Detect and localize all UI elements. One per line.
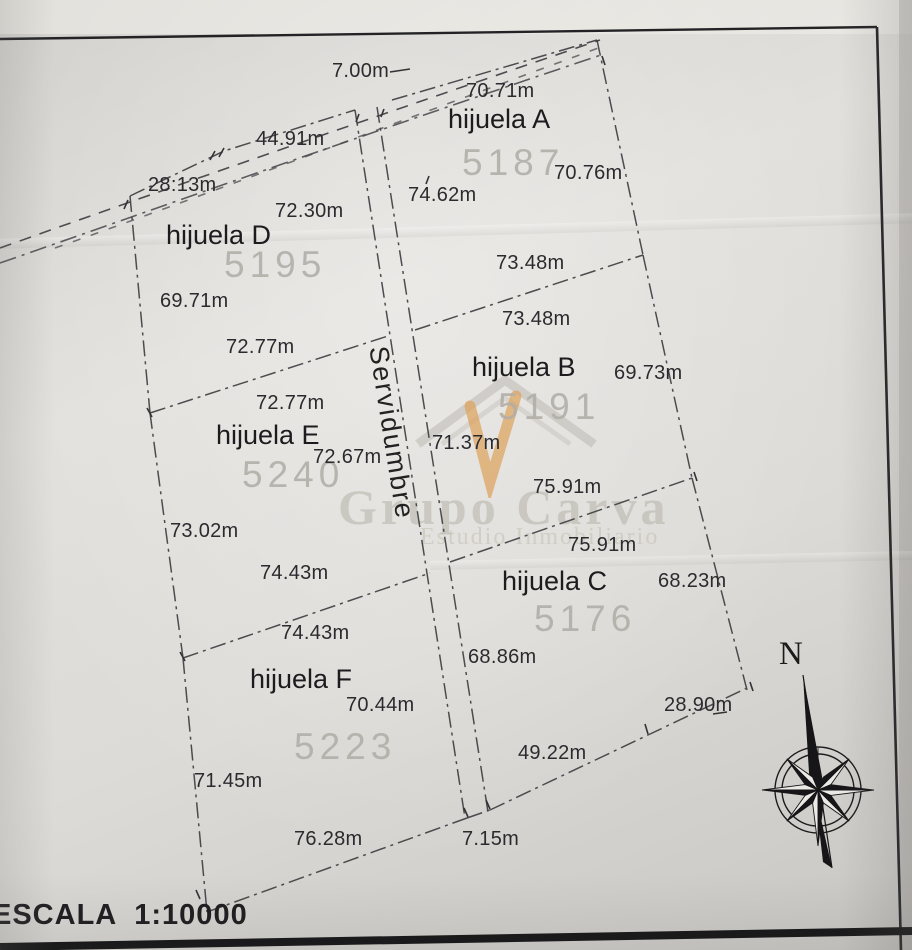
parcel-e-measurement: 73.02m [170, 520, 239, 543]
parcel-a-measurement: 73.48m [496, 252, 565, 275]
parcel-d-measurement: 72.30m [275, 200, 344, 223]
parcel-c-measurement: 68.23m [658, 570, 727, 593]
parcel-b-number: 5191 [498, 386, 600, 428]
scale-label: ESCALA 1:10000 [0, 899, 248, 932]
parcel-f-measurement: 74.43m [281, 622, 350, 645]
parcel-f-measurement: 76.28m [294, 828, 363, 851]
easement-top-width: 7.00m [332, 60, 389, 83]
parcel-b-measurement: 69.73m [614, 362, 683, 385]
parcel-c-measurement: 28.90m [664, 694, 733, 717]
parcel-c-measurement: 75.91m [568, 534, 637, 557]
parcel-e-measurement: 72.67m [313, 446, 382, 469]
parcel-c-number: 5176 [534, 598, 636, 640]
parcel-d-measurement: 28:13m [148, 174, 217, 197]
compass-north-label: N [779, 636, 803, 673]
parcel-f-measurement: 71.45m [194, 770, 263, 793]
parcel-b-measurement: 71.37m [432, 432, 501, 455]
parcel-c-measurement: 68.86m [468, 646, 537, 669]
parcel-b-name: hijuela B [472, 352, 576, 383]
parcel-a-measurement: 70.76m [554, 162, 623, 185]
parcel-f-measurement: 70.44m [346, 694, 415, 717]
parcel-f-number: 5223 [294, 726, 396, 768]
parcel-e-measurement: 72.77m [256, 392, 325, 415]
parcel-a-measurement: 70.71m [466, 80, 535, 103]
parcel-a-measurement: 74.62m [408, 184, 477, 207]
parcel-a-number: 5187 [462, 142, 564, 184]
easement-bottom-width: 7.15m [462, 828, 519, 851]
parcel-a-name: hijuela A [448, 104, 550, 135]
parcel-b-measurement: 75.91m [533, 476, 602, 499]
parcel-e-name: hijuela E [216, 420, 320, 451]
compass-rose-icon [735, 630, 905, 880]
parcel-d-number: 5195 [224, 244, 326, 286]
parcel-d-measurement: 44.91m [256, 128, 325, 151]
parcel-c-name: hijuela C [502, 566, 607, 597]
parcel-b-measurement: 73.48m [502, 308, 571, 331]
parcel-e-measurement: 74.43m [260, 562, 329, 585]
parcel-d-measurement: 72.77m [226, 336, 295, 359]
parcel-f-name: hijuela F [250, 664, 352, 695]
parcel-c-measurement: 49.22m [518, 742, 587, 765]
parcel-d-measurement: 69.71m [160, 290, 229, 313]
scanned-survey-plan: Grupo Carva Estudio Inmobiliario [0, 0, 912, 950]
